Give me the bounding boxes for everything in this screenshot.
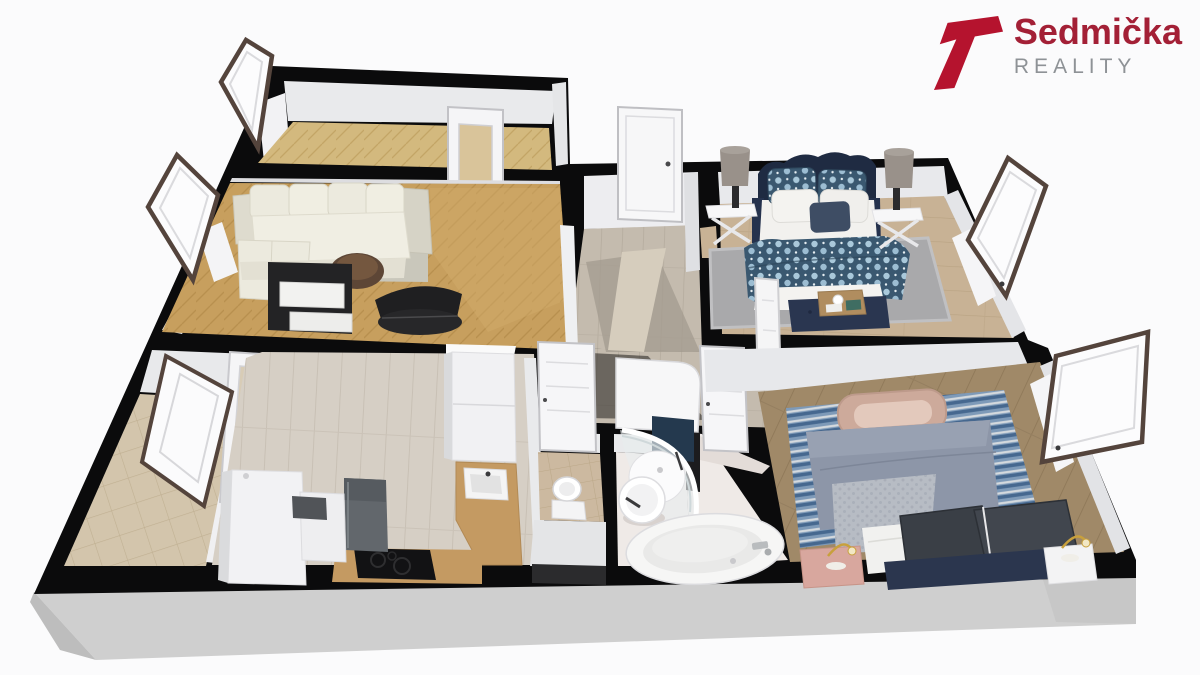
shelf-unit: [268, 262, 352, 334]
room-living: [162, 178, 578, 350]
floor-plan-render: [0, 0, 1200, 675]
kitchen-cooktop-counter: [332, 548, 482, 584]
room-wc: [530, 432, 606, 585]
kitchen-hood: [344, 478, 388, 552]
kitchen-microwave: [292, 496, 327, 520]
wc-south-face: [530, 520, 606, 568]
kitchen-faucet: [486, 472, 491, 477]
logo-tagline-text: REALITY: [1014, 56, 1182, 77]
logo-brand-text: Sedmička: [1014, 14, 1182, 50]
wc-door: [538, 342, 596, 452]
hall-parquet-floor: [258, 122, 552, 170]
corridor-east-wall-face: [684, 172, 700, 272]
logo: Sedmička REALITY: [932, 14, 1182, 92]
entry-door: [618, 107, 682, 222]
floor-plan-scene: [0, 0, 1200, 675]
br2-nightstand-left: [800, 544, 864, 588]
room-kitchen: [212, 344, 546, 585]
kitchen-tall-cabinet: [444, 344, 516, 462]
entry-door-handle: [666, 162, 671, 167]
wc-base-shadow: [532, 564, 606, 585]
sink: [619, 477, 665, 526]
logo-seven-icon: [932, 14, 1004, 92]
